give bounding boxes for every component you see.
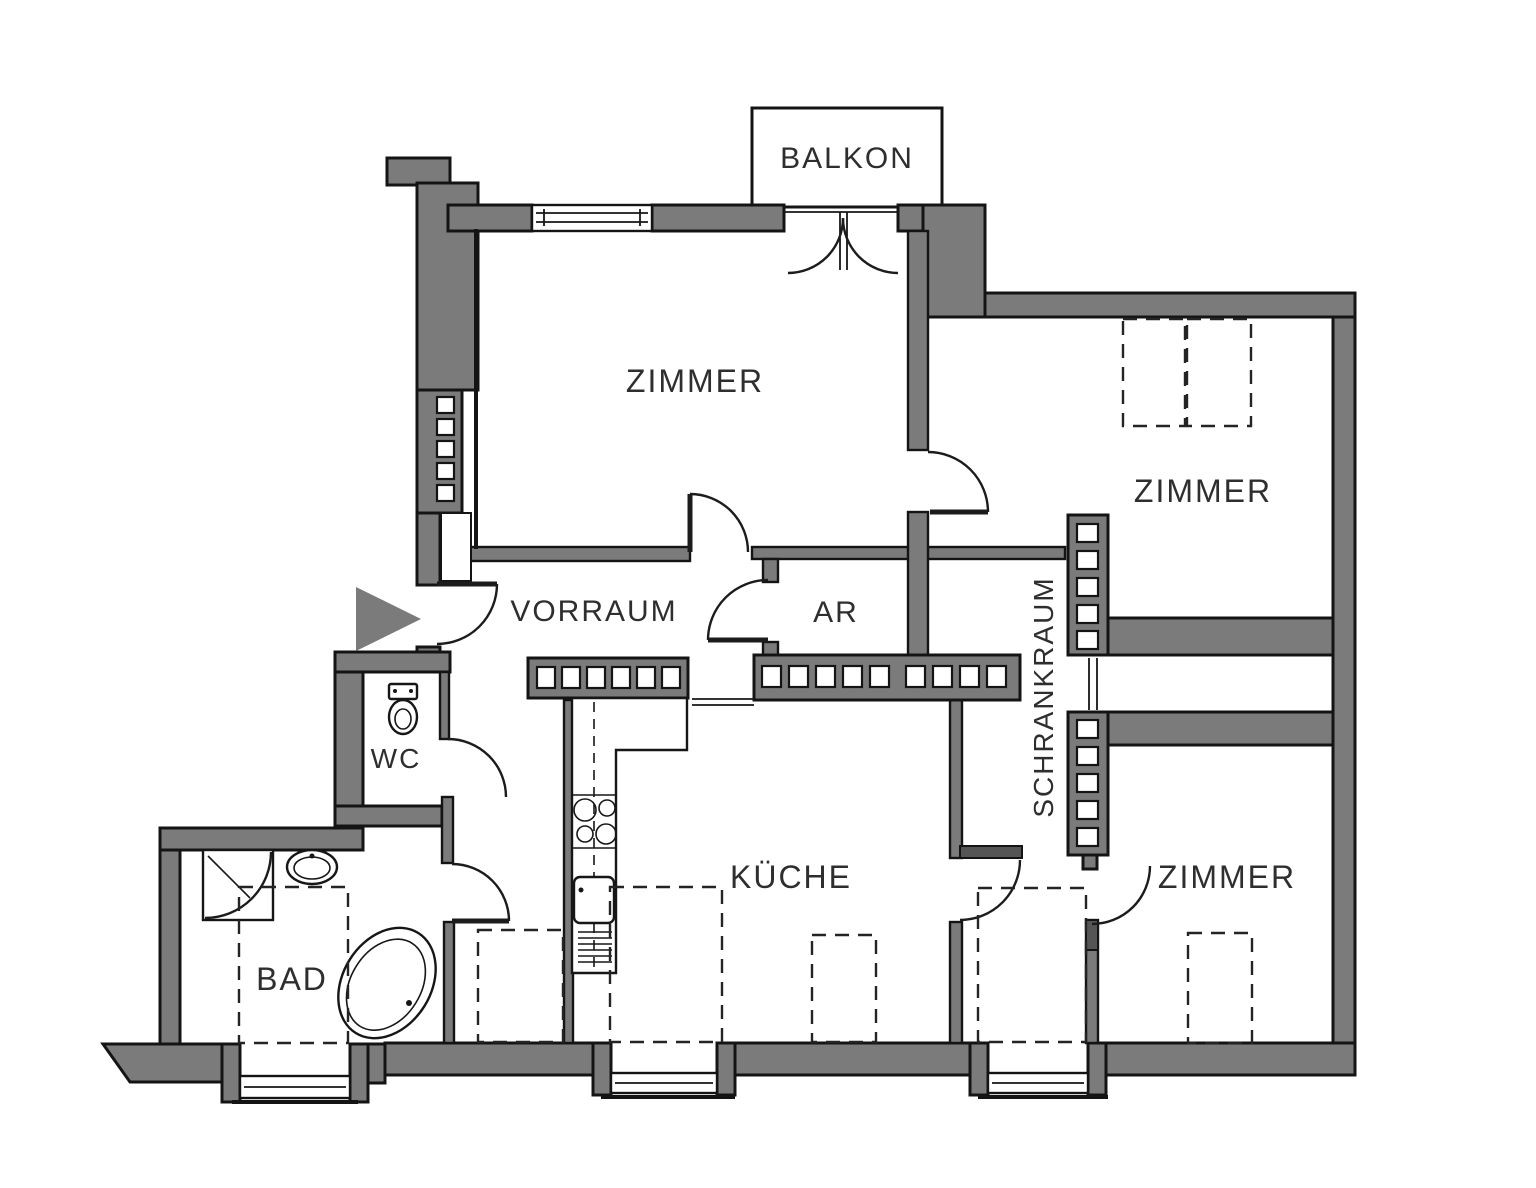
wall-chimney bbox=[387, 158, 450, 185]
hatched-wall-left bbox=[437, 397, 454, 501]
furniture-outline bbox=[610, 887, 722, 1042]
door-zimmer-top-right bbox=[928, 452, 988, 512]
door-bad bbox=[452, 864, 509, 921]
closet-outline bbox=[978, 888, 1086, 1042]
schrank-column-opening bbox=[1089, 658, 1097, 710]
window-kueche bbox=[601, 1073, 735, 1099]
bathtub-icon bbox=[318, 910, 455, 1057]
door-zimmer-top-left bbox=[690, 494, 748, 552]
window-top bbox=[532, 205, 652, 231]
door-zimmer-bottom-right bbox=[1086, 866, 1150, 950]
door-wc bbox=[448, 739, 506, 797]
label-kueche: KÜCHE bbox=[730, 859, 852, 895]
wardrobe-outline bbox=[1187, 319, 1251, 426]
window-schrankraum bbox=[978, 1073, 1108, 1099]
label-ar: AR bbox=[813, 596, 859, 629]
toilet-icon bbox=[389, 684, 417, 734]
furniture-outline bbox=[478, 930, 563, 1042]
hatched-wall-vorraum bbox=[528, 658, 688, 698]
door-ar bbox=[708, 580, 768, 640]
entrance-door bbox=[356, 584, 497, 651]
washbasin-icon bbox=[287, 850, 337, 884]
label-zimmer-bottom-right: ZIMMER bbox=[1158, 859, 1296, 895]
window-bad bbox=[232, 1076, 358, 1104]
label-zimmer-top-right: ZIMMER bbox=[1134, 473, 1272, 509]
floor-plan-drawing: BALKON ZIMMER ZIMMER VORRAUM AR SCHRANKR… bbox=[0, 0, 1536, 1188]
balcony-door bbox=[784, 207, 898, 273]
wardrobe-outline bbox=[1123, 319, 1185, 426]
label-balkon: BALKON bbox=[780, 142, 914, 175]
label-bad: BAD bbox=[256, 961, 328, 997]
kitchen-doorway-threshold bbox=[692, 699, 754, 705]
label-wc: WC bbox=[371, 743, 422, 774]
entrance-arrow-icon bbox=[356, 587, 421, 651]
label-vorraum: VORRAUM bbox=[510, 595, 677, 628]
door-kueche-schrankraum bbox=[960, 846, 1022, 920]
sink-icon bbox=[574, 877, 614, 962]
furniture-outline bbox=[812, 935, 876, 1042]
kitchen-counter bbox=[572, 698, 687, 973]
hatched-wall-schrank-lower bbox=[1068, 712, 1108, 869]
label-schrankraum: SCHRANKRAUM bbox=[1028, 576, 1059, 817]
hatched-wall-ar bbox=[754, 655, 1020, 700]
hatched-wall-schrank-upper bbox=[1068, 515, 1108, 655]
furniture-outline bbox=[1188, 933, 1252, 1043]
label-zimmer-top-left: ZIMMER bbox=[626, 363, 764, 399]
floor-plan-page: BALKON ZIMMER ZIMMER VORRAUM AR SCHRANKR… bbox=[0, 0, 1536, 1188]
